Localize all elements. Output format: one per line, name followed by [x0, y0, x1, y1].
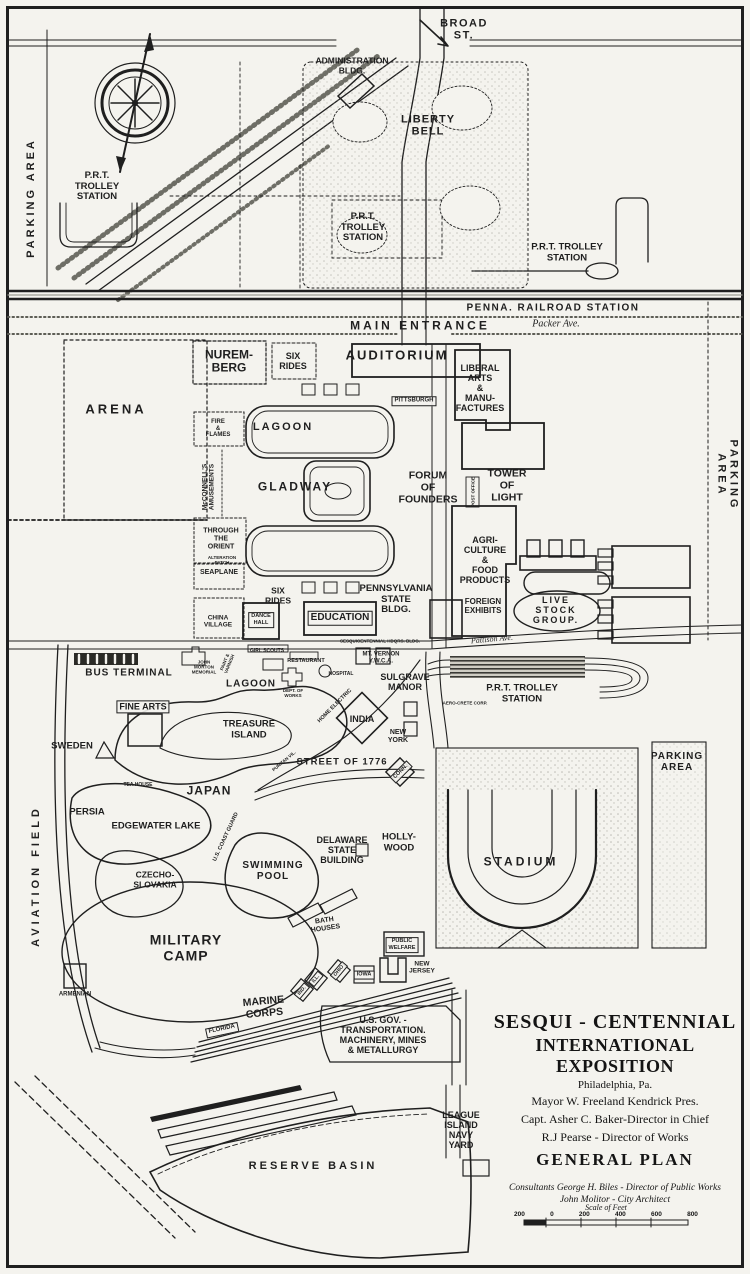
label-czecho-slovakia: CZECHO- SLOVAKIA: [133, 870, 176, 889]
label-prt-trolley-station-mid: P.R.T. TROLLEY STATION: [341, 212, 385, 244]
label-prt-trolley-station-ne: P.R.T. TROLLEY STATION: [531, 242, 603, 263]
label-parking-area-right: PARKING AREA: [715, 440, 740, 511]
label-new-jersey: NEW JERSEY: [409, 961, 435, 976]
title-mayor: Mayor W. Freeland Kendrick Pres.: [486, 1094, 744, 1109]
label-india: INDIA: [350, 714, 375, 724]
label-parking-area-se: PARKING AREA: [651, 751, 703, 773]
label-forum-of-founders: FORUM OF FOUNDERS: [399, 470, 458, 505]
scale-ticks: 2000200400600800: [514, 1211, 698, 1218]
label-prt-trolley-station-s: P.R.T. TROLLEY STATION: [486, 683, 558, 704]
scale-tick-label: 0: [550, 1211, 554, 1218]
label-paint-varnish: PAINT & VARNISH: [219, 652, 236, 674]
label-auditorium: AUDITORIUM: [346, 349, 449, 364]
label-edgewater-lake: EDGEWATER LAKE: [111, 822, 200, 833]
label-bath-houses: BATH HOUSES: [309, 915, 340, 935]
label-mt-vernon-ywca: MT. VERNON Y.W.C.A.: [362, 651, 399, 664]
label-hospital: HOSPITAL: [329, 672, 354, 678]
label-iowa: IOWA: [354, 971, 375, 980]
label-live-stock-group: LIVE STOCK GROUP.: [533, 595, 579, 625]
label-post-office: POST OFFICE: [470, 477, 475, 507]
title-block: SESQUI - CENTENNIAL INTERNATIONAL EXPOSI…: [486, 1011, 744, 1205]
title-line-1: SESQUI - CENTENNIAL: [486, 1011, 744, 1034]
label-liberal-arts: LIBERAL ARTS & MANU- FACTURES: [456, 363, 505, 413]
label-lagoon-lower: LAGOON: [226, 678, 276, 689]
label-six-rides-lower: SIX RIDES: [265, 586, 291, 605]
label-dept-of-works: DEPT. OF WORKS: [283, 688, 303, 698]
label-six-rides-upper: SIX RIDES: [279, 351, 307, 371]
label-broad-st: BROAD ST.: [440, 18, 488, 43]
label-japan: JAPAN: [187, 784, 232, 797]
label-us-coast-guard: U.S. COAST GUARD: [212, 812, 240, 863]
label-gladway: GLADWAY: [258, 480, 332, 493]
scale-tick-label: 800: [687, 1211, 698, 1218]
label-treasure-island: TREASURE ISLAND: [223, 719, 275, 740]
label-pittsburgh: PITTSBURGH: [392, 396, 437, 406]
label-new-york: NEW YORK: [388, 729, 408, 745]
label-delaware-state-building: DELAWARE STATE BUILDING: [316, 835, 367, 865]
label-sulgrave-manor: SULGRAVE MANOR: [380, 672, 429, 692]
label-reserve-basin: RESERVE BASIN: [249, 1160, 378, 1172]
label-armenian: ARMENIAN: [59, 992, 91, 999]
label-packer-ave: Packer Ave.: [532, 318, 580, 329]
exposition-map: BROAD ST.ADMINISTRATION BLDG.LIBERTY BEL…: [0, 0, 750, 1274]
scale-tick-label: 200: [579, 1211, 590, 1218]
title-director-works: R.J Pearse - Director of Works: [486, 1130, 744, 1145]
label-foreign-exhibits: FOREIGN EXHIBITS: [465, 598, 502, 616]
label-education: EDUCATION: [308, 611, 373, 626]
label-us-gov: U.S. GOV. - TRANSPORTATION. MACHINERY, M…: [340, 1015, 427, 1055]
label-through-the-orient: THROUGH THE ORIENT: [203, 527, 238, 550]
label-street-of-1776: STREET OF 1776: [296, 758, 387, 769]
label-conn: CONN.: [389, 760, 412, 783]
label-agriculture-food: AGRI- CULTURE & FOOD PRODUCTS: [460, 535, 511, 585]
label-ill: ILL.: [308, 971, 324, 988]
label-swimming-pool: SWIMMING POOL: [242, 860, 303, 882]
label-fire-and-flames: FIRE & FLAMES: [206, 419, 231, 439]
title-line-2: INTERNATIONAL EXPOSITION: [486, 1035, 744, 1077]
label-liberty-bell: LIBERTY BELL: [401, 114, 455, 139]
label-ind: IND.: [294, 982, 311, 1000]
label-prt-trolley-station-nw: P.R.T. TROLLEY STATION: [75, 171, 119, 203]
label-nuremberg: NUREM- BERG: [205, 349, 253, 376]
label-public-welfare: PUBLIC WELFARE: [386, 937, 419, 953]
label-lagoon-upper: LAGOON: [253, 421, 313, 433]
label-pattison-ave: Pattison Ave.: [471, 634, 514, 647]
label-ohio: OHIO: [330, 961, 348, 981]
title-director-chief: Capt. Asher C. Baker-Director in Chief: [486, 1112, 744, 1127]
label-stadium: STADIUM: [484, 855, 559, 868]
label-administration-bldg: ADMINISTRATION BLDG.: [315, 56, 388, 75]
label-bus-terminal: BUS TERMINAL: [85, 667, 173, 678]
label-penna-railroad-station: PENNA. RAILROAD STATION: [466, 302, 639, 313]
label-mcconnells-amusements: McCONNELL'S AMUSEMENTS: [202, 464, 217, 510]
label-john-morton-memorial: JOHN MORTON MEMORIAL: [192, 659, 217, 674]
label-restaurant: RESTAURANT: [287, 658, 324, 664]
label-military-camp: MILITARY CAMP: [150, 932, 223, 963]
label-sesqui-hdqrs: SESQUICENTENNIAL HDQRS. BLDG.: [340, 638, 420, 643]
label-aero-crete-corp: AERO-CRETE CORP.: [443, 700, 488, 705]
label-main-entrance: MAIN ENTRANCE: [350, 319, 490, 332]
scale-tick-label: 400: [615, 1211, 626, 1218]
label-marine-corps: MARINE CORPS: [242, 994, 285, 1021]
label-hollywood: HOLLY- WOOD: [382, 832, 416, 853]
label-aviation-field: AVIATION FIELD: [30, 805, 42, 947]
label-seaplane: SEAPLANE: [200, 569, 238, 577]
label-arena: ARENA: [85, 403, 146, 418]
scale-tick-label: 600: [651, 1211, 662, 1218]
label-puritan-vil: PURITAN VIL.: [271, 750, 297, 773]
label-dance-hall: DANCE HALL: [248, 612, 274, 628]
label-florida: FLORIDA: [205, 1022, 239, 1038]
label-fine-arts: FINE ARTS: [116, 700, 169, 713]
title-consultant-1: Consultants George H. Biles - Director o…: [486, 1183, 744, 1193]
label-sweden: SWEDEN: [51, 742, 93, 753]
label-parking-area-left: PARKING AREA: [25, 138, 37, 258]
label-tower-of-light: TOWER OF LIGHT: [488, 468, 527, 503]
label-home-electric: HOME ELECTRIC: [317, 688, 354, 725]
label-china-village: CHINA VILLAGE: [204, 615, 232, 630]
scale-tick-label: 200: [514, 1211, 525, 1218]
label-tea-house: TEA HOUSE: [124, 783, 153, 789]
label-girl-scouts: GIRL SCOUTS: [250, 649, 284, 655]
label-alteration-patch: ALTERATION PATCH: [208, 555, 236, 565]
label-league-island-navy-yard: LEAGUE ISLAND NAVY YARD: [442, 1110, 480, 1150]
label-persia: PERSIA: [69, 808, 104, 819]
title-general-plan: GENERAL PLAN: [486, 1150, 744, 1170]
title-city: Philadelphia, Pa.: [486, 1079, 744, 1091]
